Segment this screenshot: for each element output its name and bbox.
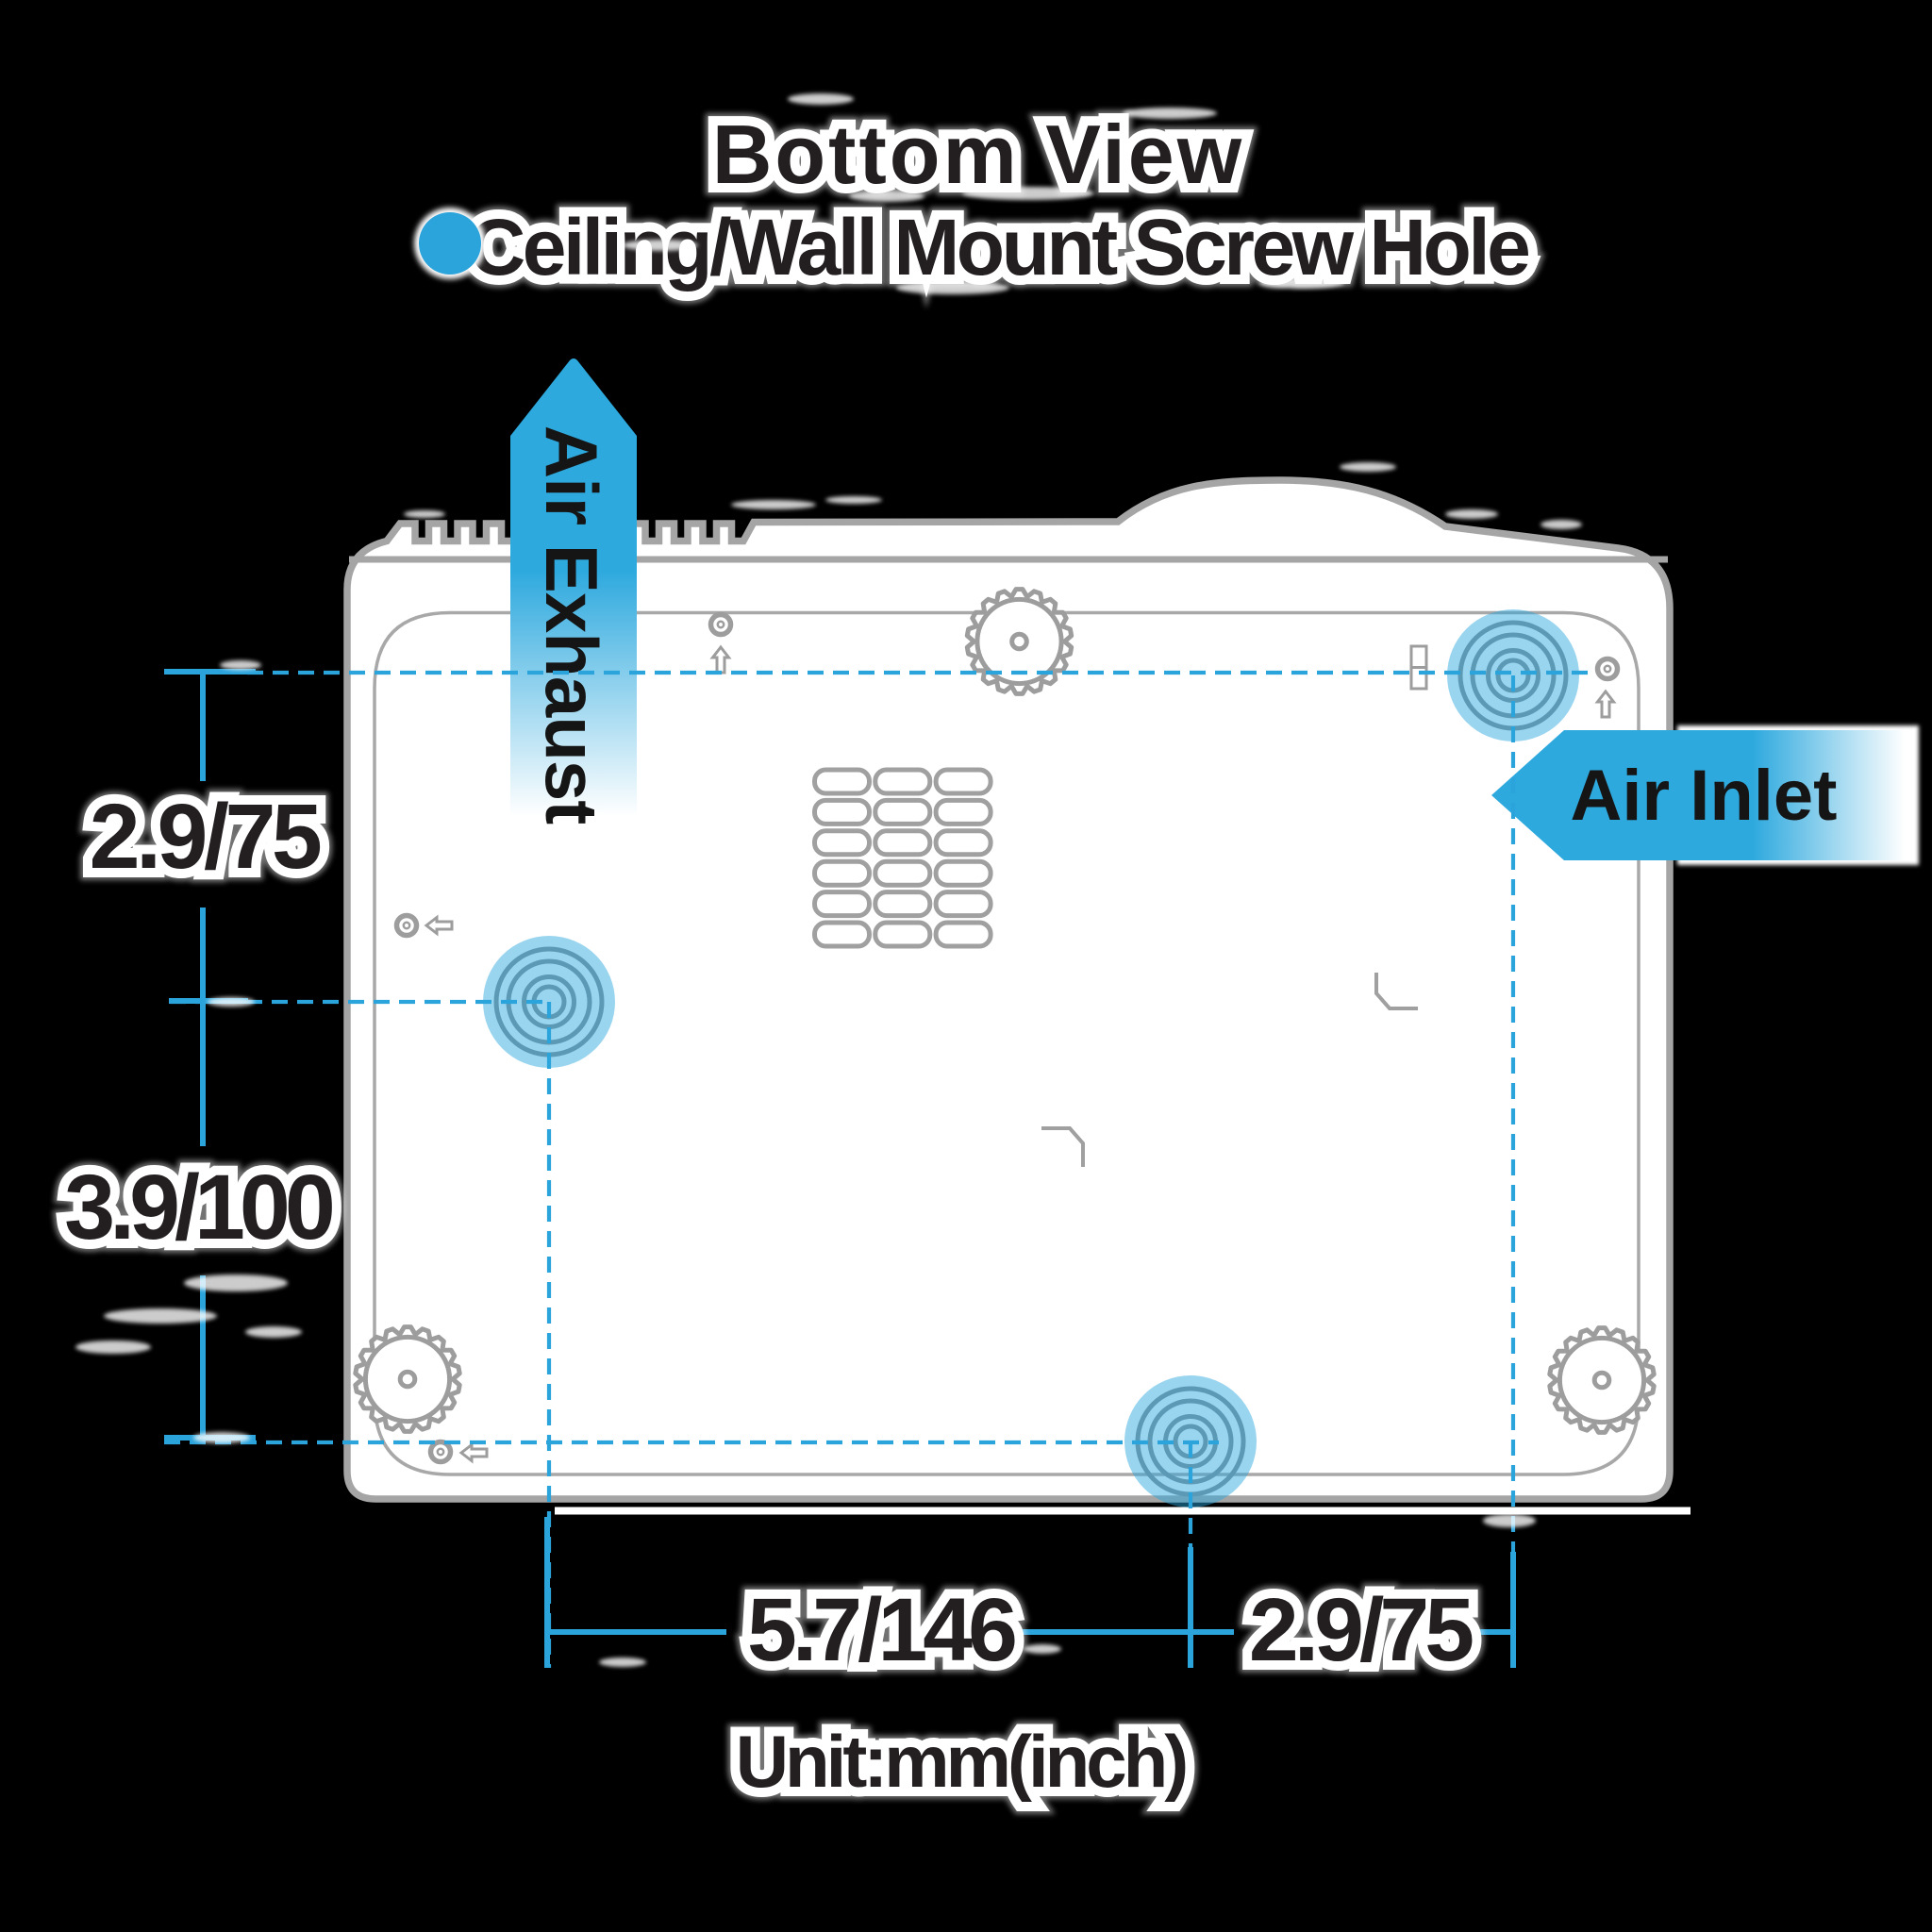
svg-text:Air Inlet: Air Inlet — [1571, 756, 1838, 836]
svg-text:2.9/75: 2.9/75 — [90, 785, 321, 888]
svg-text:2.9/75: 2.9/75 — [1249, 1580, 1473, 1680]
svg-text:Bottom View: Bottom View — [712, 108, 1244, 201]
svg-text:5.7/146: 5.7/146 — [747, 1580, 1015, 1680]
svg-text:Air Exhaust: Air Exhaust — [530, 425, 613, 824]
svg-text:3.9/100: 3.9/100 — [64, 1156, 332, 1258]
svg-text:Unit:mm(inch): Unit:mm(inch) — [736, 1720, 1187, 1803]
